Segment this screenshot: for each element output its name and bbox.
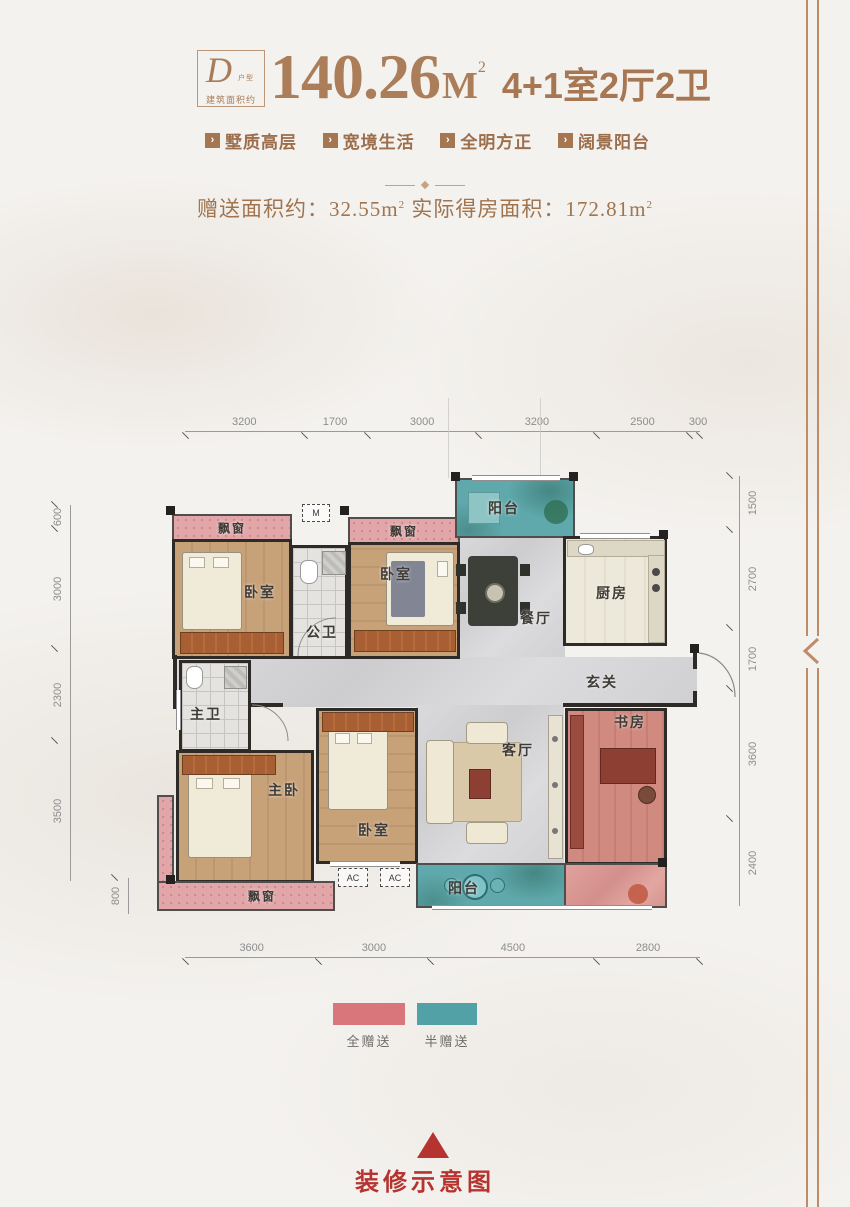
dining-table-icon (468, 556, 518, 626)
ac-marker: AC (338, 868, 368, 887)
bay-window-3 (157, 881, 335, 911)
room-label-balcony: 阳台 (448, 878, 480, 898)
legend-swatch-half-gift (417, 1003, 477, 1025)
extension-line (448, 398, 449, 478)
bed-icon (182, 552, 242, 630)
area-value: 140.26 (270, 40, 440, 114)
legend-item-full-gift: 全赠送 (333, 1003, 405, 1050)
headline: 140.26 M 2 4+1室2厅2卫 (270, 40, 711, 114)
dimension-value: 3000 (367, 416, 478, 428)
wall-segment (563, 703, 697, 707)
dimension-value: 2700 (747, 567, 759, 591)
room-label-balcony: 阳台 (488, 498, 520, 518)
gift-area-line: 赠送面积约：32.55m2 实际得房面积：172.81m2 (0, 193, 850, 223)
door-arc (252, 705, 288, 741)
wall-pier (166, 875, 175, 884)
dimension-chain-left: 600 3000 2300 3500 (50, 505, 90, 881)
corridor-floor (175, 657, 697, 707)
wall-pier (569, 472, 578, 481)
room-label-kitchen: 厨房 (596, 583, 628, 603)
feature-tag: › 阔景阳台 (558, 128, 650, 153)
window-glazing (330, 861, 400, 867)
toilet-icon (300, 560, 318, 584)
room-label-public-bath: 公卫 (306, 622, 338, 642)
dimension-inner-800: 800 (110, 878, 150, 914)
feature-tag: › 全明方正 (440, 128, 532, 153)
dimension-value: 300 (689, 416, 700, 428)
dimension-value: 3200 (478, 416, 597, 428)
dimension-value: 2300 (52, 683, 64, 707)
shower-icon (224, 666, 247, 689)
area-unit: M (442, 64, 478, 108)
feature-tag: › 宽境生活 (323, 128, 415, 153)
room-count-text: 4+1室2厅2卫 (502, 57, 711, 109)
chevron-right-icon: › (440, 133, 455, 148)
diamond-icon (421, 181, 429, 189)
shower-icon (322, 551, 346, 575)
feature-label: 墅质高层 (225, 128, 297, 153)
divider-line (435, 185, 465, 186)
actual-area-sup: 2 (646, 199, 653, 211)
wardrobe-icon (322, 712, 414, 732)
sofa-icon (426, 740, 454, 824)
area-superscript: 2 (478, 59, 486, 77)
room-label-living: 客厅 (502, 740, 534, 760)
wall-pier (690, 644, 699, 653)
desk-icon (600, 748, 656, 784)
built-area-label: 建筑面积约 (198, 93, 264, 106)
room-label-bay-window: 飘窗 (390, 523, 418, 540)
bed-icon (328, 728, 388, 810)
room-label-bedroom: 卧室 (358, 820, 390, 840)
wall-pier (658, 858, 667, 867)
chevron-left-icon (799, 636, 825, 666)
dimension-value: 4500 (430, 942, 597, 954)
dimension-value: 600 (52, 508, 64, 526)
dimension-value: 3000 (52, 577, 64, 601)
sofa-chair-icon (466, 822, 508, 844)
feature-label: 阔景阳台 (578, 128, 650, 153)
unit-type-badge: D 户型 建筑面积约 (197, 50, 265, 107)
plant-icon (544, 500, 568, 524)
chevron-right-icon: › (323, 133, 338, 148)
feature-label: 全明方正 (460, 128, 532, 153)
window-glazing (432, 905, 652, 910)
window-glazing (176, 690, 181, 730)
caption-text: 装修示意图 (0, 1162, 850, 1197)
dimension-value: 2400 (747, 850, 759, 874)
chevron-right-icon: › (205, 133, 220, 148)
dimension-value: 3600 (747, 742, 759, 766)
extension-line (540, 398, 541, 476)
dimension-value: 800 (110, 887, 122, 905)
dimension-value: 1700 (304, 416, 367, 428)
dimension-value: 3600 (185, 942, 318, 954)
room-label-dining: 餐厅 (520, 608, 552, 628)
chevron-right-icon: › (558, 133, 573, 148)
room-label-bedroom: 卧室 (244, 582, 276, 602)
actual-area-label: 实际得房面积： (405, 197, 565, 221)
window-glazing (472, 475, 560, 481)
wardrobe-icon (180, 632, 284, 654)
room-label-bay-window: 飘窗 (248, 888, 276, 905)
dimension-chain-top: 3200 1700 3000 3200 2500 300 (185, 410, 700, 432)
dimension-value: 3000 (318, 942, 429, 954)
legend-item-half-gift: 半赠送 (417, 1003, 477, 1050)
dimension-chain-bottom: 3600 3000 4500 2800 (185, 936, 700, 958)
feature-tag: › 墅质高层 (205, 128, 297, 153)
room-label-bay-window: 飘窗 (218, 520, 246, 537)
bookshelf-icon (570, 715, 584, 849)
legend-label-full-gift: 全赠送 (333, 1031, 405, 1050)
vent-marker: M (302, 504, 330, 522)
patio-chair-icon (490, 878, 505, 893)
room-label-master-bath: 主卫 (190, 704, 222, 724)
dimension-value: 3200 (185, 416, 304, 428)
dimension-value: 2500 (596, 416, 689, 428)
room-label-foyer: 玄关 (586, 672, 618, 692)
triangle-icon (417, 1132, 449, 1158)
gift-area-value: 32.55m (329, 197, 399, 221)
tv-cabinet-icon (548, 715, 563, 859)
plant-icon (628, 884, 648, 904)
dimension-value: 3500 (52, 799, 64, 823)
wall-pier (659, 530, 668, 539)
legend-label-half-gift: 半赠送 (417, 1031, 477, 1050)
legend-swatch-full-gift (333, 1003, 405, 1025)
room-label-study: 书房 (614, 712, 646, 732)
edge-rule (817, 0, 819, 636)
wall-pier (166, 506, 175, 515)
floorplan-page: D 户型 建筑面积约 140.26 M 2 4+1室2厅2卫 › 墅质高层 › … (0, 0, 850, 1207)
wardrobe-icon (354, 630, 456, 652)
ac-marker: AC (380, 868, 410, 887)
window-glazing (580, 533, 650, 539)
feature-label: 宽境生活 (343, 128, 415, 153)
feature-tags: › 墅质高层 › 宽境生活 › 全明方正 › 阔景阳台 (205, 128, 650, 153)
room-label-bedroom: 卧室 (380, 564, 412, 584)
unit-type-label: 户型 (238, 73, 254, 83)
bay-window-3-side (157, 795, 174, 883)
bed-icon (188, 772, 252, 858)
room-label-master-bedroom: 主卧 (268, 780, 300, 800)
toilet-icon (186, 666, 203, 689)
dimension-value: 2800 (596, 942, 700, 954)
divider-line (385, 185, 415, 186)
actual-area-value: 172.81m (565, 197, 646, 221)
dimension-value: 1500 (747, 491, 759, 515)
entry-door-arc (697, 653, 737, 697)
wardrobe-icon (182, 755, 276, 775)
wall-pier (451, 472, 460, 481)
balcony-bottom-gift-area (564, 863, 667, 908)
kitchen-stove-icon (648, 555, 665, 643)
edge-rule (817, 668, 819, 1207)
edge-rule (806, 668, 808, 1207)
chair-icon (638, 786, 656, 804)
gift-area-label: 赠送面积约： (197, 197, 329, 221)
ornamental-divider (0, 182, 850, 188)
dimension-value: 1700 (747, 646, 759, 670)
edge-rule (806, 0, 808, 636)
unit-letter: D (206, 51, 232, 89)
wall-pier (340, 506, 349, 515)
